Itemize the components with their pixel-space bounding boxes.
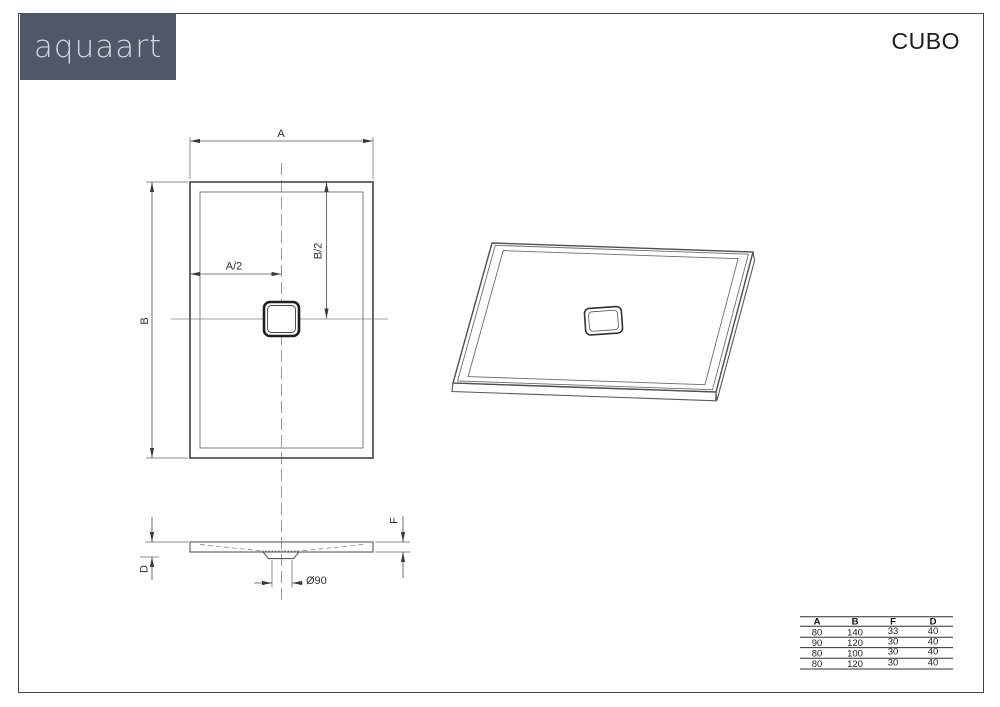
- table-cell: 80: [812, 627, 823, 638]
- table-cell: 33: [888, 626, 899, 637]
- table-cell: 120: [847, 638, 863, 649]
- table-cell: 40: [928, 636, 939, 647]
- dimension-label-d: D: [139, 565, 151, 573]
- technical-drawing: A B A/2 B/2: [0, 0, 1000, 707]
- table-header-b: B: [852, 616, 859, 627]
- top-view: [171, 163, 388, 602]
- dimension-label-drain: Ø90: [306, 575, 327, 587]
- dimension-label-f: F: [389, 517, 401, 524]
- table-cell: 120: [847, 659, 863, 670]
- drain-3d: [584, 306, 623, 335]
- dimension-label-b-half: B/2: [313, 243, 325, 260]
- table-cell: 40: [928, 657, 939, 668]
- table-cell: 30: [888, 647, 899, 658]
- table-row: 80 100 30 40: [812, 647, 939, 660]
- size-table: A B F D 80 140 33 40 90 120 30 40 80 100…: [800, 616, 953, 670]
- slope-line-right: [300, 545, 363, 552]
- table-cell: 80: [812, 648, 823, 659]
- table-row: 80 140 33 40: [812, 626, 939, 639]
- slope-line-left: [200, 545, 262, 552]
- drawing-sheet: aquaart CUBO A B A/: [0, 0, 1000, 707]
- dimension-label-a: A: [277, 128, 285, 140]
- perspective-view: [452, 243, 755, 401]
- table-cell: 140: [847, 627, 863, 638]
- table-row: 80 120 30 40: [812, 657, 939, 670]
- table-header-a: A: [814, 616, 821, 627]
- section-view: Ø90 F D: [139, 516, 411, 588]
- top-view-dimensions: A B A/2 B/2: [139, 128, 373, 458]
- table-row: 90 120 30 40: [812, 636, 939, 649]
- table-cell: 40: [928, 626, 939, 637]
- section-drain-recess: [263, 552, 299, 559]
- table-cell: 40: [928, 647, 939, 658]
- table-cell: 80: [812, 659, 823, 670]
- table-cell: 30: [888, 657, 899, 668]
- dimension-label-b: B: [139, 317, 151, 324]
- drain-outer: [264, 302, 299, 336]
- table-cell: 90: [812, 638, 823, 649]
- table-cell: 30: [888, 636, 899, 647]
- table-cell: 100: [847, 648, 863, 659]
- dimension-label-a-half: A/2: [226, 261, 243, 273]
